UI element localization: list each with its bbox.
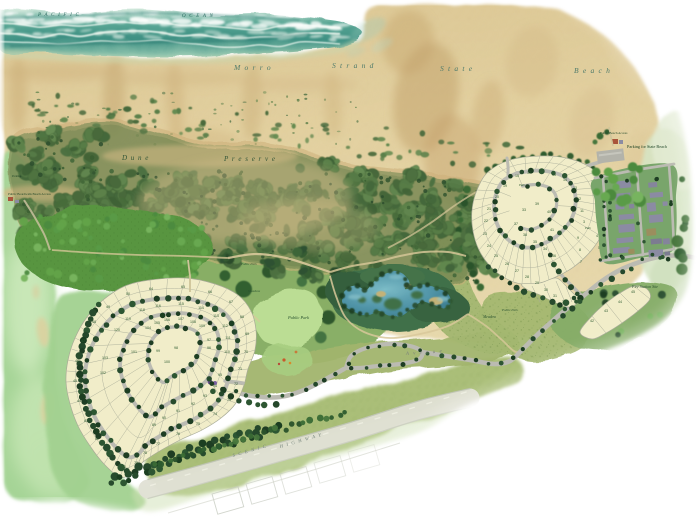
- svg-text:48: 48: [92, 320, 96, 324]
- svg-text:115: 115: [178, 302, 184, 306]
- svg-text:O C E A N: O C E A N: [182, 14, 214, 19]
- svg-text:19: 19: [503, 184, 507, 188]
- svg-text:38: 38: [523, 233, 527, 237]
- svg-text:42: 42: [590, 319, 594, 323]
- svg-text:33: 33: [522, 208, 526, 212]
- svg-text:Parking: Parking: [12, 175, 21, 178]
- svg-text:26: 26: [505, 262, 509, 266]
- svg-text:Public Boardwalk Beach Access: Public Boardwalk Beach Access: [8, 192, 51, 196]
- svg-text:34: 34: [543, 247, 547, 251]
- svg-text:29: 29: [535, 281, 539, 285]
- svg-text:103: 103: [102, 356, 108, 360]
- svg-text:P r e s e r v e: P r e s e r v e: [223, 155, 276, 163]
- svg-text:99: 99: [156, 349, 160, 353]
- svg-text:25: 25: [494, 254, 498, 258]
- svg-text:40: 40: [547, 210, 551, 214]
- svg-text:50: 50: [126, 292, 130, 296]
- svg-text:116: 116: [155, 304, 161, 308]
- svg-text:Path: Path: [519, 183, 525, 187]
- svg-text:21: 21: [487, 207, 491, 211]
- svg-text:32: 32: [562, 300, 566, 304]
- svg-text:73: 73: [227, 398, 231, 402]
- svg-text:4: 4: [596, 234, 598, 238]
- svg-text:23: 23: [483, 232, 487, 236]
- svg-text:67: 67: [229, 300, 233, 304]
- svg-text:10: 10: [515, 174, 519, 178]
- svg-text:80: 80: [122, 465, 126, 469]
- svg-text:102: 102: [100, 371, 106, 375]
- svg-text:31: 31: [553, 294, 557, 298]
- svg-text:39: 39: [535, 202, 539, 206]
- svg-text:71: 71: [238, 367, 242, 371]
- svg-text:64: 64: [149, 287, 153, 291]
- svg-text:79: 79: [134, 461, 138, 465]
- svg-text:120: 120: [114, 328, 120, 332]
- svg-text:37: 37: [514, 222, 518, 226]
- svg-text:83: 83: [84, 419, 88, 423]
- svg-text:111: 111: [225, 336, 230, 340]
- svg-text:M o r r o: M o r r o: [233, 63, 272, 72]
- svg-text:91: 91: [176, 409, 180, 413]
- svg-text:Fire Station Site: Fire Station Site: [631, 284, 658, 289]
- svg-text:15: 15: [552, 173, 556, 177]
- svg-text:Parking for State Beach: Parking for State Beach: [627, 144, 668, 149]
- svg-text:P A C I F I C: P A C I F I C: [37, 13, 80, 18]
- svg-text:S t r a n d: S t r a n d: [332, 61, 375, 70]
- svg-text:72: 72: [234, 382, 238, 386]
- svg-text:74: 74: [213, 412, 217, 416]
- svg-text:93: 93: [203, 394, 207, 398]
- svg-text:B e a c h: B e a c h: [574, 66, 611, 75]
- svg-text:46: 46: [75, 359, 79, 363]
- svg-text:11: 11: [580, 209, 584, 213]
- svg-text:97: 97: [207, 338, 211, 342]
- svg-text:109: 109: [199, 324, 205, 328]
- svg-text:44: 44: [77, 399, 81, 403]
- svg-text:66: 66: [208, 290, 212, 294]
- svg-text:22: 22: [484, 219, 488, 223]
- svg-text:13: 13: [573, 186, 577, 190]
- svg-text:75: 75: [196, 422, 200, 426]
- svg-text:104: 104: [145, 326, 151, 330]
- svg-text:69: 69: [245, 332, 249, 336]
- svg-text:107: 107: [178, 317, 184, 321]
- svg-text:35: 35: [533, 240, 537, 244]
- svg-text:81: 81: [107, 453, 111, 457]
- svg-text:Public Beach Access: Public Beach Access: [600, 131, 628, 135]
- svg-text:118: 118: [139, 308, 145, 312]
- svg-text:101: 101: [131, 350, 137, 354]
- svg-text:Public Park: Public Park: [287, 315, 310, 320]
- svg-text:45: 45: [631, 290, 635, 294]
- svg-text:47: 47: [81, 339, 85, 343]
- svg-text:77: 77: [156, 442, 160, 446]
- svg-text:20: 20: [495, 195, 499, 199]
- svg-text:9: 9: [577, 236, 579, 240]
- svg-text:92: 92: [191, 402, 195, 406]
- svg-text:90: 90: [162, 416, 166, 420]
- svg-text:41: 41: [550, 228, 554, 232]
- svg-text:78: 78: [143, 451, 147, 455]
- svg-text:100: 100: [164, 360, 170, 364]
- svg-text:30: 30: [544, 288, 548, 292]
- svg-text:70: 70: [244, 350, 248, 354]
- svg-text:106: 106: [164, 318, 170, 322]
- svg-text:8: 8: [579, 248, 581, 252]
- svg-text:112: 112: [222, 324, 228, 328]
- svg-text:76: 76: [176, 432, 180, 436]
- svg-text:16: 16: [539, 170, 543, 174]
- svg-text:44: 44: [618, 300, 622, 304]
- svg-text:28: 28: [525, 275, 529, 279]
- svg-text:17: 17: [527, 171, 531, 175]
- svg-text:105: 105: [154, 321, 160, 325]
- svg-text:65: 65: [181, 285, 185, 289]
- svg-text:D u n e: D u n e: [121, 154, 149, 162]
- svg-text:Meadow: Meadow: [482, 315, 497, 319]
- svg-text:27: 27: [515, 269, 519, 273]
- svg-text:98: 98: [174, 346, 178, 350]
- svg-text:43: 43: [604, 309, 608, 313]
- svg-text:45: 45: [73, 379, 77, 383]
- svg-text:68: 68: [240, 315, 244, 319]
- svg-text:Meadow: Meadow: [247, 289, 261, 293]
- svg-text:S t a t e: S t a t e: [440, 64, 473, 73]
- svg-text:24: 24: [487, 244, 491, 248]
- svg-text:36: 36: [552, 254, 556, 258]
- svg-text:82: 82: [95, 437, 99, 441]
- svg-text:3: 3: [583, 220, 585, 224]
- svg-text:49: 49: [106, 305, 110, 309]
- svg-text:Path: Path: [585, 226, 591, 230]
- svg-text:113: 113: [213, 314, 219, 318]
- svg-text:14: 14: [563, 178, 567, 182]
- svg-text:Public Path: Public Path: [501, 308, 518, 312]
- svg-text:114: 114: [198, 306, 204, 310]
- svg-text:Public Path: Public Path: [240, 262, 257, 266]
- svg-text:96: 96: [207, 346, 211, 350]
- svg-text:7: 7: [580, 260, 582, 264]
- svg-text:89: 89: [152, 423, 156, 427]
- svg-text:95: 95: [218, 373, 222, 377]
- svg-text:12: 12: [577, 197, 581, 201]
- svg-text:108: 108: [190, 320, 196, 324]
- svg-text:119: 119: [125, 317, 131, 321]
- svg-text:110: 110: [224, 350, 230, 354]
